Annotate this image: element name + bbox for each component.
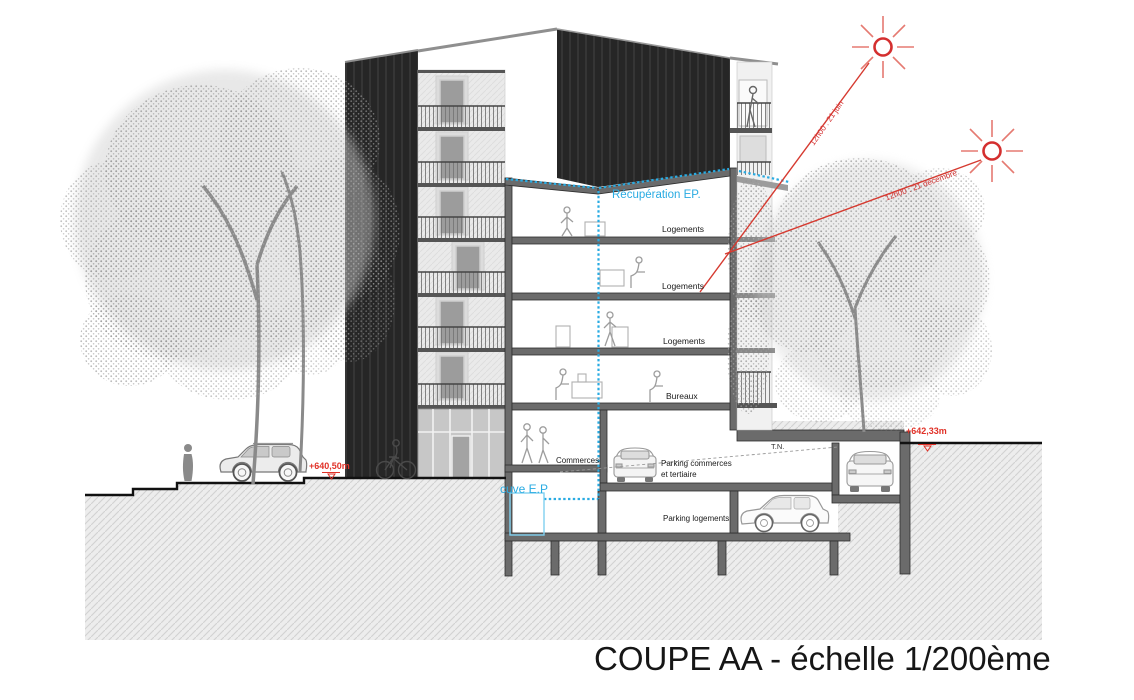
floor-label-parking-logements: Parking logements xyxy=(663,514,729,523)
front-facade-elevation xyxy=(418,70,505,478)
recuperation-ep-label: Récupération EP. xyxy=(612,189,701,201)
drawing-title: COUPE AA - échelle 1/200ème xyxy=(594,640,1051,678)
section-drawing: Récupération EP. Logements Logements Log… xyxy=(0,0,1134,700)
section-drawing-canvas xyxy=(0,0,1134,700)
street-car xyxy=(220,444,307,482)
street-level-label: +640,50m xyxy=(309,461,350,471)
terrain-naturel-label: T.N. xyxy=(771,442,784,451)
sun-december-icon xyxy=(961,120,1023,182)
cuve-ep-label: cuve E.P xyxy=(500,482,548,496)
front-roofline xyxy=(418,29,557,51)
pedestrian-silhouette xyxy=(183,444,193,481)
sun-june-icon xyxy=(852,16,914,78)
black-upper-volume xyxy=(557,29,730,187)
entrance-car-rear xyxy=(847,452,893,493)
shopfront-glazing xyxy=(418,409,505,478)
upper-level-label: +642,33m xyxy=(906,426,947,436)
floor-label-logements-low: Logements xyxy=(663,336,705,346)
floor-label-logements-mid: Logements xyxy=(662,281,704,291)
floor-label-logements-top: Logements xyxy=(662,224,704,234)
floor-label-parking-commerces: Parking commerces et tertiaire xyxy=(661,459,737,481)
floor-label-bureaux: Bureaux xyxy=(666,391,698,401)
floor-label-commerces: Commerces xyxy=(556,456,599,465)
